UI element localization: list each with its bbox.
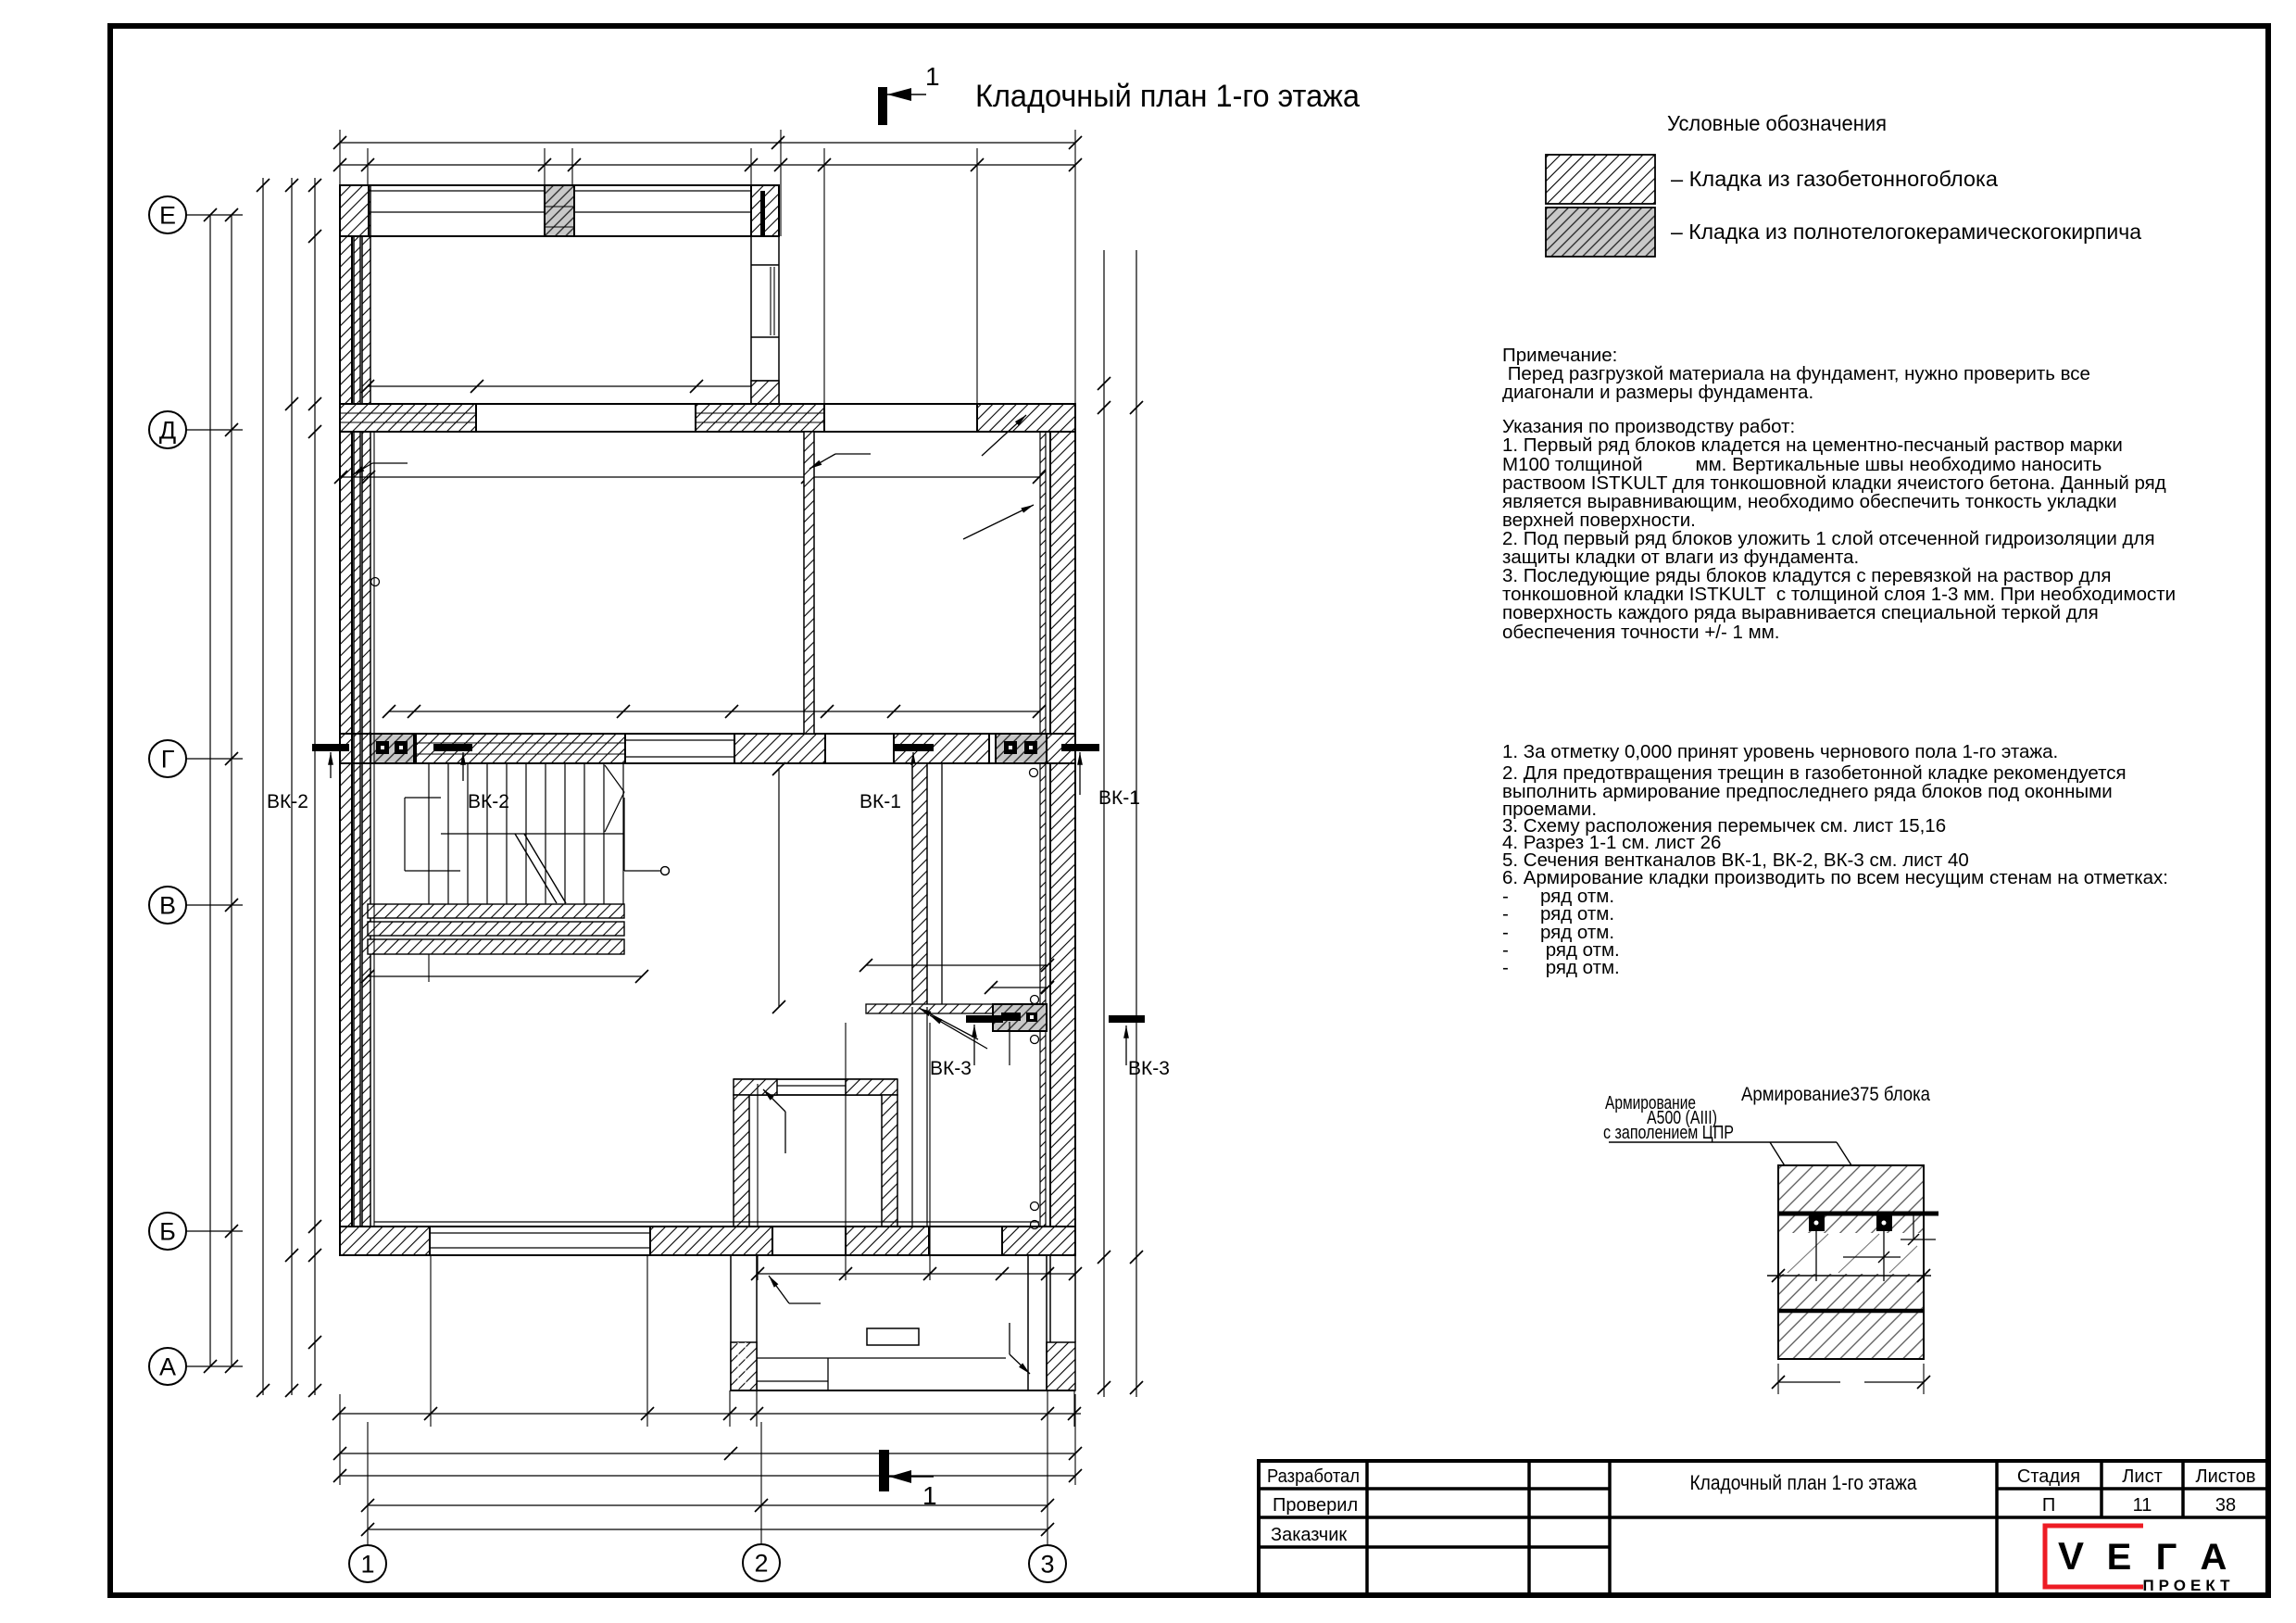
svg-text:Б: Б bbox=[159, 1217, 176, 1245]
svg-text:ВК-3: ВК-3 bbox=[1128, 1058, 1170, 1079]
svg-text:Кладочный план 1-го этажа: Кладочный план 1-го этажа bbox=[975, 79, 1360, 114]
svg-text:Разработал: Разработал bbox=[1267, 1466, 1360, 1487]
svg-text:– Кладка из полнотелогокерамич: – Кладка из полнотелогокерамическогокирп… bbox=[1671, 220, 2141, 244]
svg-text:ВК-1: ВК-1 bbox=[859, 791, 901, 812]
svg-text:11: 11 bbox=[2133, 1495, 2152, 1516]
svg-text:обеспечения точности +/- 1 мм.: обеспечения точности +/- 1 мм. bbox=[1502, 622, 1780, 643]
svg-text:А: А bbox=[159, 1352, 176, 1380]
svg-text:Заказчик: Заказчик bbox=[1271, 1525, 1347, 1545]
svg-text:ВК-2: ВК-2 bbox=[468, 791, 509, 812]
svg-text:1: 1 bbox=[925, 62, 940, 91]
svg-text:Стадия: Стадия bbox=[2017, 1466, 2080, 1487]
svg-text:ВК-3: ВК-3 bbox=[930, 1058, 972, 1079]
svg-text:ВК-2: ВК-2 bbox=[267, 791, 308, 812]
svg-text:Е: Е bbox=[159, 201, 176, 229]
svg-text:1: 1 bbox=[922, 1481, 937, 1510]
svg-text:диагонали и размеры фундамента: диагонали и размеры фундамента. bbox=[1502, 382, 1813, 403]
svg-text:38: 38 bbox=[2215, 1495, 2236, 1516]
svg-text:Д: Д bbox=[159, 416, 176, 444]
svg-text:Армирование375 блока: Армирование375 блока bbox=[1741, 1084, 1930, 1105]
svg-text:Проверил: Проверил bbox=[1273, 1495, 1358, 1516]
svg-text:- ряд отм.: - ряд отм. bbox=[1502, 957, 1620, 978]
svg-text:– Кладка из газобетонногоблока: – Кладка из газобетонногоблока bbox=[1671, 167, 1998, 191]
svg-text:2: 2 bbox=[754, 1549, 768, 1577]
svg-text:ВК-1: ВК-1 bbox=[1098, 787, 1140, 809]
svg-text:1. Первый ряд блоков кладется: 1. Первый ряд блоков кладется на цементн… bbox=[1502, 434, 2123, 456]
svg-text:Листов: Листов bbox=[2196, 1466, 2256, 1487]
svg-text:V: V bbox=[2058, 1534, 2084, 1578]
svg-text:Г: Г bbox=[2156, 1537, 2177, 1578]
svg-text:Лист: Лист bbox=[2122, 1466, 2162, 1487]
svg-text:3: 3 bbox=[1040, 1550, 1054, 1578]
svg-text:1. За отметку 0,000 принят уро: 1. За отметку 0,000 принят уровень черно… bbox=[1502, 741, 2058, 762]
svg-text:В: В bbox=[159, 891, 176, 919]
svg-text:с заполением ЦПР: с заполением ЦПР bbox=[1603, 1123, 1734, 1143]
svg-text:Условные обозначения: Условные обозначения bbox=[1667, 111, 1887, 135]
svg-text:ПРОЕКТ: ПРОЕКТ bbox=[2142, 1577, 2234, 1594]
svg-text:Г: Г bbox=[161, 745, 175, 773]
svg-text:Е: Е bbox=[2107, 1537, 2132, 1578]
svg-text:Кладочный план 1-го этажа: Кладочный план 1-го этажа bbox=[1690, 1471, 1918, 1494]
svg-text:А: А bbox=[2201, 1537, 2227, 1578]
svg-text:П: П bbox=[2042, 1495, 2055, 1516]
svg-text:поверхность каждого ряда вырав: поверхность каждого ряда выравнивается с… bbox=[1502, 602, 2099, 623]
svg-text:1: 1 bbox=[360, 1550, 374, 1578]
